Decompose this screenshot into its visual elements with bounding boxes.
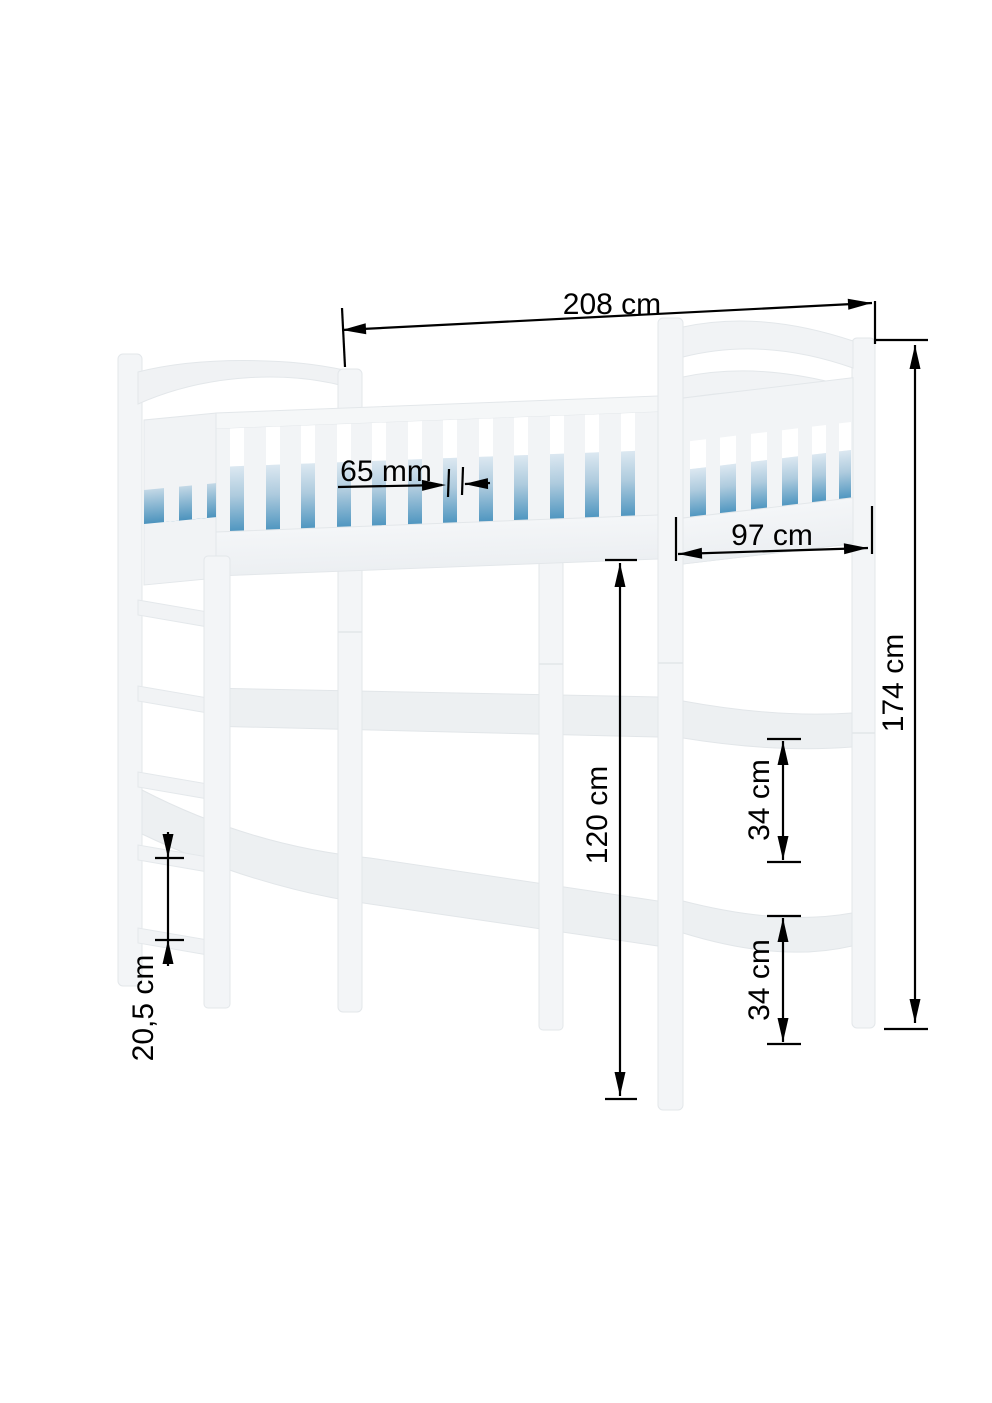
dim-upper-rail-spacing-label: 34 cm xyxy=(743,759,776,841)
ladder-front-stile xyxy=(204,556,230,1008)
rear-right-post xyxy=(852,338,875,1028)
dim-lower-rail-spacing-label: 34 cm xyxy=(743,939,776,1021)
mattress-through-gap xyxy=(690,467,706,517)
middle-front-leg xyxy=(539,560,563,1030)
left-end-slat xyxy=(164,449,179,522)
dim-slat-gap-label: 65 mm xyxy=(340,455,432,488)
front-right-post xyxy=(658,318,683,1110)
dim-clearance-height-label: 120 cm xyxy=(581,766,614,864)
diagram-canvas: 208 cm 65 mm 97 cm 174 xyxy=(0,0,992,1403)
dim-bed-width-label: 97 cm xyxy=(731,519,813,552)
dim-total-height-label: 174 cm xyxy=(877,634,910,732)
mattress-through-gap xyxy=(230,466,244,532)
dim-ladder-rung-spacing-label: 20,5 cm xyxy=(127,955,160,1062)
loft-bed-dimension-diagram: 208 cm 65 mm 97 cm 174 xyxy=(0,0,992,1403)
left-end-slat xyxy=(192,446,207,519)
rear-left-post xyxy=(118,354,142,986)
dim-total-length-label: 208 cm xyxy=(563,288,661,321)
